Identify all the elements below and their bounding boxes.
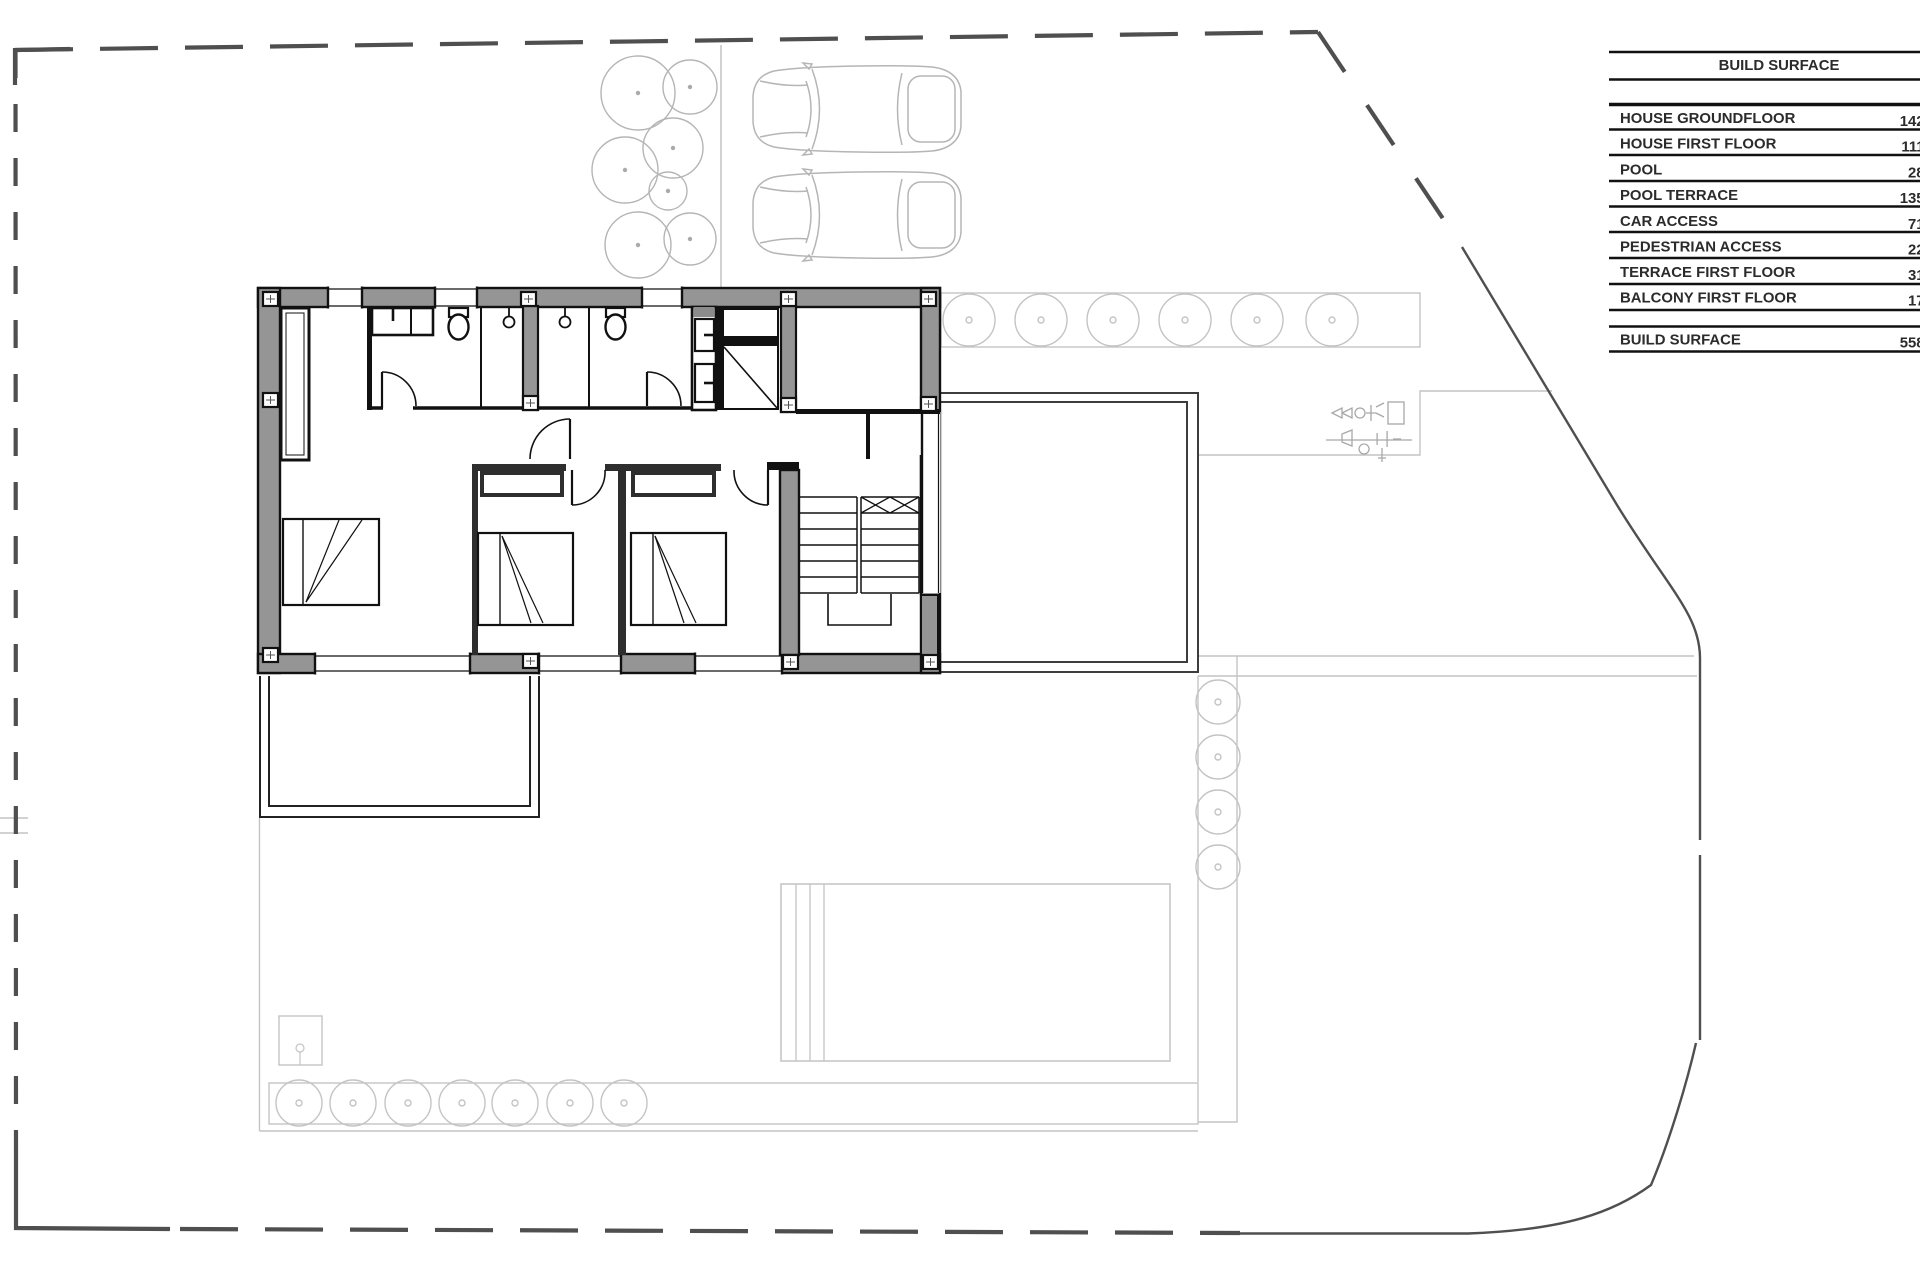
svg-text:BUILD SURFACE: BUILD SURFACE [1620, 333, 1741, 349]
svg-text:28.0: 28.0 [1908, 166, 1920, 182]
svg-text:PEDESTRIAN ACCESS: PEDESTRIAN ACCESS [1620, 240, 1782, 256]
svg-text:31.0: 31.0 [1908, 268, 1920, 284]
svg-text:17.2: 17.2 [1908, 294, 1920, 310]
svg-text:HOUSE FIRST FLOOR: HOUSE FIRST FLOOR [1620, 137, 1777, 153]
svg-text:POOL TERRACE: POOL TERRACE [1620, 188, 1738, 204]
svg-text:22.2: 22.2 [1908, 243, 1920, 259]
svg-text:71.1: 71.1 [1908, 217, 1920, 233]
svg-text:TERRACE FIRST FLOOR: TERRACE FIRST FLOOR [1620, 265, 1796, 281]
svg-text:111.1: 111.1 [1901, 140, 1920, 156]
svg-text:HOUSE GROUNDFLOOR: HOUSE GROUNDFLOOR [1620, 111, 1796, 127]
svg-text:POOL: POOL [1620, 163, 1662, 179]
svg-text:BALCONY FIRST FLOOR: BALCONY FIRST FLOOR [1620, 291, 1797, 307]
svg-text:142.1: 142.1 [1900, 114, 1920, 130]
svg-text:BUILD SURFACE: BUILD SURFACE [1719, 58, 1840, 74]
svg-text:CAR ACCESS: CAR ACCESS [1620, 214, 1718, 230]
svg-text:558.8: 558.8 [1900, 336, 1920, 352]
svg-text:135.2: 135.2 [1900, 191, 1920, 207]
